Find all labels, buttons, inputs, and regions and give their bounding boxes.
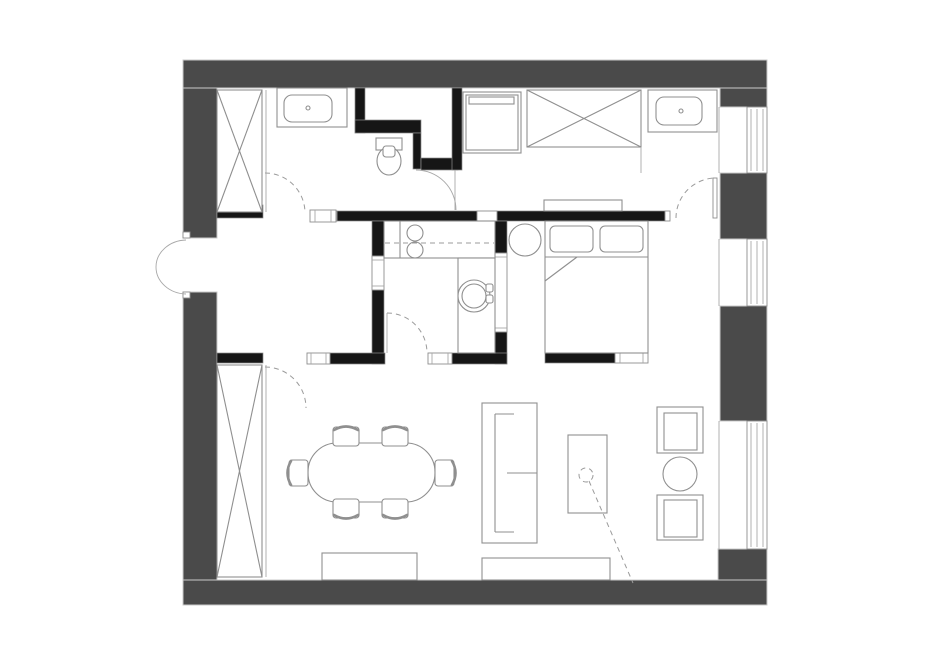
kitchen-left-wall-upper	[372, 221, 384, 256]
washbasin-bathroom	[284, 95, 332, 122]
left-wall-upper	[183, 88, 217, 238]
kitchen-faucet-2	[486, 295, 493, 303]
hall-band-wall-left	[337, 211, 477, 221]
entry-jamb-bottom	[183, 292, 190, 298]
hall-living-wall	[217, 353, 263, 363]
toilet-flush-button	[383, 146, 395, 157]
kitchen-bottom-wall-left	[330, 353, 385, 364]
kitchen-faucet-1	[486, 284, 493, 292]
bedside-table	[509, 224, 541, 256]
door-swing-kitchen	[387, 313, 427, 353]
dining-chair-right-seat	[435, 460, 454, 486]
right-wall-pier-upper	[720, 173, 767, 239]
side-table-round	[663, 457, 697, 491]
right-wall-corner-top	[720, 88, 767, 107]
coffee-table	[568, 435, 607, 513]
headboard-shelf	[544, 200, 622, 211]
band-gap-panel	[477, 211, 497, 221]
glazing-kitchen-left	[372, 256, 384, 290]
bed-pillow-1	[550, 226, 593, 252]
bed-pillow-2	[600, 226, 643, 252]
right-wall-corner-bottom	[718, 549, 767, 580]
toilet-niche-wall-c	[413, 133, 421, 169]
entry-door-swing	[156, 240, 186, 294]
dining-table	[308, 443, 435, 502]
bottom-wall	[183, 580, 767, 605]
entry-jamb-top	[183, 232, 190, 238]
toilet-niche-wall-b	[355, 120, 421, 133]
floor-plan	[0, 0, 945, 668]
bed-foot-wall	[545, 353, 615, 363]
kitchen-counter	[384, 221, 495, 258]
right-wall-pier-middle	[720, 306, 767, 421]
bath-laundry-wall	[452, 88, 462, 170]
door-swing-toilet	[416, 170, 456, 210]
kitchen-right-wall-upper	[495, 221, 507, 253]
kitchen-sink	[458, 280, 490, 312]
top-wall	[183, 60, 767, 88]
threshold-hall-bottom	[307, 353, 330, 364]
left-wall-lower	[183, 292, 217, 580]
kitchen-bottom-wall-right	[452, 353, 507, 364]
threshold-hall-top	[310, 210, 336, 222]
door-swing-bedroom	[676, 178, 716, 218]
glazing-kitchen-right	[495, 253, 507, 332]
washing-machine	[463, 92, 521, 153]
sideboard-dining	[322, 553, 417, 580]
door-leaf-bedroom	[713, 178, 717, 218]
door-swing-bathroom	[265, 173, 305, 213]
dining-chair-left-seat	[289, 460, 308, 486]
door-swing-living	[265, 367, 306, 408]
hall-band-wall-right	[497, 211, 665, 221]
band-end-cap-right	[665, 211, 670, 221]
sideboard-tv	[482, 558, 610, 580]
